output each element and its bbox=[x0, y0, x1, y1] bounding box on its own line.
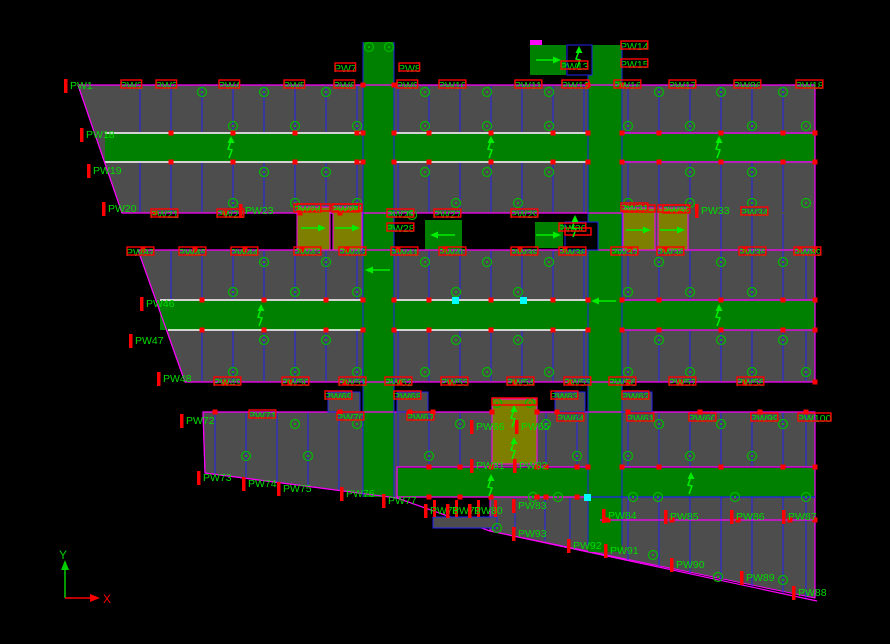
wall-label-tick bbox=[470, 420, 474, 434]
wall-end-mark bbox=[620, 465, 625, 470]
wall-label: PW55 bbox=[563, 377, 592, 389]
wall-label-tick bbox=[242, 477, 246, 491]
wall-label: PW86 bbox=[733, 80, 762, 92]
column-marker-dot bbox=[428, 455, 430, 457]
column-marker-dot bbox=[486, 91, 488, 93]
wall-end-mark bbox=[200, 328, 205, 333]
column-marker-dot bbox=[486, 371, 488, 373]
wall-end-mark bbox=[813, 298, 818, 303]
column-marker-dot bbox=[689, 171, 691, 173]
wall-label: PW18 bbox=[795, 80, 824, 92]
wall-label: PW21 bbox=[150, 209, 179, 221]
wall-end-mark bbox=[293, 131, 298, 136]
column-marker-dot bbox=[356, 371, 358, 373]
wall-label-tick bbox=[87, 164, 91, 178]
wall-end-mark bbox=[213, 410, 218, 415]
wall-label: PW39 bbox=[510, 247, 539, 259]
wall-label: PW75 bbox=[283, 483, 312, 495]
wall-label: PW41 bbox=[390, 247, 419, 259]
column-marker-dot bbox=[576, 455, 578, 457]
column-marker-dot bbox=[517, 291, 519, 293]
column-marker-dot bbox=[751, 371, 753, 373]
wall-end-mark bbox=[392, 298, 397, 303]
wall-end-mark bbox=[489, 160, 494, 165]
wall-end-mark bbox=[392, 160, 397, 165]
wall-end-mark bbox=[719, 465, 724, 470]
wall-label: PW89 bbox=[793, 247, 822, 259]
wall-label: PW57 bbox=[668, 377, 697, 389]
wall-end-mark bbox=[262, 328, 267, 333]
wall-end-mark bbox=[575, 465, 580, 470]
column-marker-dot bbox=[532, 496, 534, 498]
wall-end-mark bbox=[657, 131, 662, 136]
wall-label-tick bbox=[468, 504, 472, 518]
wall-label: PW45 bbox=[178, 247, 207, 259]
wall-label: PW99 bbox=[750, 413, 779, 425]
column-marker-dot bbox=[658, 261, 660, 263]
wall-end-mark bbox=[231, 131, 236, 136]
wall-label: PW66 bbox=[476, 421, 505, 433]
wall-label: PW29 bbox=[510, 209, 539, 221]
wall-label: PW33 bbox=[701, 205, 730, 217]
column-marker-dot bbox=[294, 291, 296, 293]
column-marker-dot bbox=[782, 91, 784, 93]
column-marker-dot bbox=[232, 202, 234, 204]
wall-end-mark bbox=[586, 298, 591, 303]
grip-point bbox=[584, 494, 591, 501]
wall-label: PW9 bbox=[396, 80, 419, 92]
column-marker-dot bbox=[486, 125, 488, 127]
wall-label: PW16 bbox=[613, 80, 642, 92]
wall-end-mark bbox=[551, 131, 556, 136]
cad-viewport[interactable]: PW7PW8PW14PW15PW13PW1PW2PW3PW4PW5PW6PW9P… bbox=[0, 0, 890, 644]
column-marker-dot bbox=[263, 171, 265, 173]
column-marker-dot bbox=[657, 496, 659, 498]
column-marker-dot bbox=[232, 125, 234, 127]
wall-end-mark bbox=[427, 495, 432, 500]
wall-end-mark bbox=[813, 328, 818, 333]
column-marker-dot bbox=[717, 576, 719, 578]
wall-label-tick bbox=[792, 586, 796, 600]
wall-end-mark bbox=[361, 328, 366, 333]
column-marker-dot bbox=[245, 455, 247, 457]
wall-label: PW3 bbox=[155, 80, 178, 92]
wall-end-mark bbox=[427, 465, 432, 470]
wall-end-mark bbox=[489, 328, 494, 333]
wall-end-mark bbox=[719, 160, 724, 165]
wall-end-mark bbox=[427, 298, 432, 303]
column-marker-dot bbox=[496, 402, 498, 404]
wall-label-tick bbox=[567, 539, 571, 553]
column-marker-dot bbox=[356, 125, 358, 127]
wall-label-tick bbox=[382, 494, 386, 508]
wall-label-tick bbox=[730, 510, 734, 524]
wall-end-mark bbox=[719, 298, 724, 303]
column-marker-dot bbox=[424, 125, 426, 127]
wall-label: PW76 bbox=[346, 488, 375, 500]
wall-label: PW53 bbox=[440, 377, 469, 389]
wall-label-tick bbox=[140, 297, 144, 311]
column-marker-dot bbox=[424, 261, 426, 263]
wall-end-mark bbox=[586, 131, 591, 136]
wall-label-tick bbox=[602, 509, 606, 523]
column-marker-dot bbox=[325, 91, 327, 93]
column-marker-dot bbox=[805, 125, 807, 127]
wall-end-mark bbox=[719, 131, 724, 136]
column-marker-dot bbox=[782, 339, 784, 341]
wall-label: PW58 bbox=[736, 377, 765, 389]
wall-end-mark bbox=[657, 160, 662, 165]
column-marker-dot bbox=[548, 261, 550, 263]
wall-label: PW90 bbox=[676, 559, 705, 571]
wall-label: PW19 bbox=[93, 165, 122, 177]
wall-end-mark bbox=[620, 328, 625, 333]
column-marker-dot bbox=[720, 261, 722, 263]
wall-end-mark bbox=[458, 495, 463, 500]
wall-label: PW54 bbox=[506, 377, 535, 389]
wall-label-tick bbox=[515, 420, 519, 434]
column-marker-dot bbox=[720, 339, 722, 341]
wall-label: PW68 bbox=[393, 391, 422, 403]
wall-label: PW5 bbox=[283, 80, 306, 92]
wall-end-mark bbox=[427, 131, 432, 136]
wall-label: PW63 bbox=[550, 391, 579, 403]
column-marker-dot bbox=[782, 579, 784, 581]
column-marker-dot bbox=[689, 455, 691, 457]
wall-end-mark bbox=[458, 465, 463, 470]
wall-label-tick bbox=[157, 372, 161, 386]
wall-end-mark bbox=[657, 328, 662, 333]
wall-label-tick bbox=[740, 571, 744, 585]
wall-end-mark bbox=[657, 298, 662, 303]
wall-end-mark bbox=[620, 131, 625, 136]
wall-label-tick bbox=[695, 204, 699, 218]
column-marker-dot bbox=[751, 125, 753, 127]
column-marker-dot bbox=[201, 91, 203, 93]
wall-label: PW81 bbox=[476, 460, 505, 472]
wall-end-mark bbox=[427, 160, 432, 165]
wall-end-mark bbox=[489, 298, 494, 303]
column-marker-dot bbox=[627, 371, 629, 373]
wall-label: PW23 bbox=[245, 205, 274, 217]
column-marker-dot bbox=[782, 423, 784, 425]
column-marker-dot bbox=[782, 261, 784, 263]
wall-end-mark bbox=[535, 410, 540, 415]
column-marker-dot bbox=[368, 46, 370, 48]
wall-label-tick bbox=[782, 510, 786, 524]
wall-label: PW30 bbox=[558, 223, 587, 235]
column-marker-dot bbox=[805, 202, 807, 204]
wall-end-mark bbox=[551, 328, 556, 333]
wall-label-tick bbox=[102, 202, 106, 216]
wall-end-mark bbox=[657, 465, 662, 470]
column-marker-dot bbox=[307, 455, 309, 457]
wall-label: PW20 bbox=[108, 203, 137, 215]
column-marker-dot bbox=[455, 339, 457, 341]
wall-end-mark bbox=[231, 160, 236, 165]
wall-tick bbox=[530, 40, 542, 45]
wall-end-mark bbox=[586, 160, 591, 165]
column-marker-dot bbox=[751, 291, 753, 293]
column-marker-dot bbox=[627, 291, 629, 293]
wall-end-mark bbox=[392, 328, 397, 333]
wall-label: PW7 bbox=[334, 63, 357, 75]
wall-label-tick bbox=[424, 504, 428, 518]
wall-label: PW80 bbox=[474, 505, 503, 517]
wall-end-mark bbox=[361, 160, 366, 165]
column-marker-dot bbox=[294, 371, 296, 373]
wall-label: PW4 bbox=[218, 80, 241, 92]
column-marker-dot bbox=[632, 496, 634, 498]
wall-label-tick bbox=[604, 544, 608, 558]
wall-label: PW15 bbox=[620, 59, 649, 71]
wall-label: PW27 bbox=[433, 209, 462, 221]
wall-label-tick bbox=[470, 459, 474, 473]
wall-end-mark bbox=[781, 131, 786, 136]
wall-end-mark bbox=[324, 328, 329, 333]
column-marker-dot bbox=[627, 125, 629, 127]
column-marker-dot bbox=[548, 91, 550, 93]
wall-label: PW6 bbox=[333, 80, 356, 92]
wall-end-mark bbox=[169, 160, 174, 165]
wall-end-mark bbox=[361, 83, 366, 88]
wall-label: PW83 bbox=[518, 500, 547, 512]
column-marker-dot bbox=[424, 171, 426, 173]
column-marker-dot bbox=[734, 496, 736, 498]
wall-end-mark bbox=[620, 298, 625, 303]
column-marker-dot bbox=[805, 496, 807, 498]
wall-end-mark bbox=[586, 328, 591, 333]
wall-label: PW47 bbox=[135, 335, 164, 347]
wall-label: PW1 bbox=[70, 80, 93, 92]
wall-label: PW88 bbox=[798, 587, 827, 599]
column-marker-dot bbox=[294, 125, 296, 127]
wall-label-tick bbox=[129, 334, 133, 348]
wall-end-mark bbox=[200, 298, 205, 303]
wall-label: PW48 bbox=[163, 373, 192, 385]
wall-label-tick bbox=[197, 471, 201, 485]
column-marker-dot bbox=[455, 202, 457, 204]
wall-label-tick bbox=[512, 527, 516, 541]
floor-plan[interactable]: PW7PW8PW14PW15PW13PW1PW2PW3PW4PW5PW6PW9P… bbox=[0, 0, 890, 644]
column-marker-dot bbox=[325, 171, 327, 173]
column-marker-dot bbox=[720, 91, 722, 93]
drive-aisle bbox=[397, 468, 815, 497]
wall-label-tick bbox=[239, 204, 243, 218]
wall-label: PW24 bbox=[293, 204, 322, 216]
wall-end-mark bbox=[544, 495, 549, 500]
wall-label: PW71 bbox=[248, 410, 277, 422]
wall-end-mark bbox=[551, 298, 556, 303]
drive-aisle bbox=[105, 134, 815, 161]
column-marker-dot bbox=[805, 371, 807, 373]
wall-label: PW13 bbox=[560, 61, 589, 73]
wall-label: PW86 bbox=[736, 511, 765, 523]
wall-label: PW40 bbox=[438, 247, 467, 259]
wall-label-tick bbox=[513, 459, 517, 473]
wall-end-mark bbox=[392, 131, 397, 136]
wall-end-mark bbox=[262, 298, 267, 303]
wall-label: PW36 bbox=[656, 247, 685, 259]
wall-label: PW72 bbox=[186, 415, 215, 427]
column-marker-dot bbox=[424, 371, 426, 373]
wall-label: PW74 bbox=[248, 478, 277, 490]
wall-label: PW44 bbox=[230, 247, 259, 259]
wall-label: PW61 bbox=[626, 413, 655, 425]
wall-label-tick bbox=[340, 487, 344, 501]
x-axis-label: X bbox=[103, 592, 111, 606]
wall-label-tick bbox=[664, 510, 668, 524]
wall-end-mark bbox=[813, 380, 818, 385]
wall-label-tick bbox=[670, 558, 674, 572]
wall-label: PW93 bbox=[518, 528, 547, 540]
wall-label: PW8 bbox=[398, 63, 421, 75]
wall-end-mark bbox=[620, 160, 625, 165]
column-marker-dot bbox=[388, 46, 390, 48]
column-marker-dot bbox=[263, 91, 265, 93]
column-marker-dot bbox=[325, 261, 327, 263]
wall-end-mark bbox=[293, 160, 298, 165]
wall-label: PW34 bbox=[740, 207, 769, 219]
column-marker-dot bbox=[658, 423, 660, 425]
column-marker-dot bbox=[263, 339, 265, 341]
wall-label: PW11 bbox=[514, 80, 542, 92]
wall-label: PW25 bbox=[331, 204, 360, 216]
column-marker-dot bbox=[751, 202, 753, 204]
y-axis-label: Y bbox=[59, 548, 67, 562]
wall-label: PW28 bbox=[386, 223, 415, 235]
wall-label: PW12 bbox=[561, 80, 590, 92]
wall-label: PW2 bbox=[120, 80, 143, 92]
wall-end-mark bbox=[355, 131, 360, 136]
column-marker-dot bbox=[356, 291, 358, 293]
wall-label: PW14 bbox=[620, 41, 649, 53]
wall-label: PW84 bbox=[608, 510, 637, 522]
column-marker-dot bbox=[486, 171, 488, 173]
wall-end-mark bbox=[813, 465, 818, 470]
column-marker-dot bbox=[325, 339, 327, 341]
wall-end-mark bbox=[535, 495, 540, 500]
wall-label: PW92 bbox=[573, 540, 602, 552]
column-marker-dot bbox=[486, 261, 488, 263]
wall-label: PW17 bbox=[668, 80, 697, 92]
wall-end-mark bbox=[355, 160, 360, 165]
wall-end-mark bbox=[719, 328, 724, 333]
wall-end-mark bbox=[169, 131, 174, 136]
wall-label: PW37 bbox=[610, 247, 639, 259]
wall-label: PW70 bbox=[336, 412, 365, 424]
wall-label: PW56 bbox=[608, 377, 637, 389]
wall-label: PW51 bbox=[338, 377, 367, 389]
column-marker-dot bbox=[459, 423, 461, 425]
wall-end-mark bbox=[551, 160, 556, 165]
column-marker-dot bbox=[294, 423, 296, 425]
column-marker-dot bbox=[658, 339, 660, 341]
wall-label-tick bbox=[446, 504, 450, 518]
wall-end-mark bbox=[361, 131, 366, 136]
wall-label: PW73 bbox=[203, 472, 232, 484]
column-marker-dot bbox=[751, 171, 753, 173]
grip-point bbox=[520, 297, 527, 304]
wall-label: PW31 bbox=[620, 203, 649, 215]
column-marker-dot bbox=[548, 171, 550, 173]
wall-label: PW60 bbox=[688, 413, 717, 425]
wall-label: PW10 bbox=[438, 80, 467, 92]
wall-end-mark bbox=[575, 495, 580, 500]
wall-label-tick bbox=[277, 482, 281, 496]
column-marker-dot bbox=[557, 496, 559, 498]
wall-label: PW89 bbox=[746, 572, 775, 584]
wall-label: PW43 bbox=[293, 247, 322, 259]
wall-end-mark bbox=[490, 410, 495, 415]
column-marker-dot bbox=[548, 125, 550, 127]
column-marker-dot bbox=[627, 455, 629, 457]
column-marker-dot bbox=[232, 371, 234, 373]
wall-label: PW35 bbox=[738, 247, 767, 259]
wall-label-tick bbox=[180, 414, 184, 428]
column-marker-dot bbox=[689, 371, 691, 373]
column-marker-dot bbox=[689, 202, 691, 204]
column-marker-dot bbox=[689, 291, 691, 293]
wall-label: PW50 bbox=[281, 377, 310, 389]
column-marker-dot bbox=[548, 371, 550, 373]
wall-label: PW32 bbox=[662, 205, 691, 217]
wall-end-mark bbox=[489, 131, 494, 136]
wall-label: PW82 bbox=[519, 460, 548, 472]
wall-label: PW38 bbox=[558, 247, 587, 259]
wall-end-mark bbox=[324, 298, 329, 303]
wall-label: PW62 bbox=[621, 391, 650, 403]
wall-end-mark bbox=[781, 298, 786, 303]
wall-label: PW52 bbox=[384, 377, 413, 389]
wall-label-tick bbox=[80, 128, 84, 142]
wall-label: PW77 bbox=[388, 495, 417, 507]
wall-end-mark bbox=[586, 465, 591, 470]
wall-label: PW67 bbox=[406, 412, 435, 424]
column-marker-dot bbox=[455, 291, 457, 293]
wall-end-mark bbox=[781, 465, 786, 470]
column-marker-dot bbox=[496, 527, 498, 529]
wall-label: PW49 bbox=[213, 377, 242, 389]
column-marker-dot bbox=[720, 423, 722, 425]
wall-label: PW65 bbox=[521, 421, 550, 433]
column-marker-dot bbox=[529, 402, 531, 404]
wall-label: PW85 bbox=[670, 511, 699, 523]
column-marker-dot bbox=[751, 455, 753, 457]
wall-end-mark bbox=[781, 160, 786, 165]
wall-label-tick bbox=[512, 499, 516, 513]
column-marker-dot bbox=[652, 554, 654, 556]
column-marker-dot bbox=[658, 91, 660, 93]
column-marker-dot bbox=[232, 291, 234, 293]
grip-point bbox=[452, 297, 459, 304]
wall-label: PW87 bbox=[126, 247, 155, 259]
wall-label-tick bbox=[64, 79, 68, 93]
column-marker-dot bbox=[424, 91, 426, 93]
column-marker-dot bbox=[517, 339, 519, 341]
wall-label: PW18 bbox=[86, 129, 115, 141]
wall-label: PW46 bbox=[146, 298, 175, 310]
wall-label: PW69 bbox=[324, 391, 353, 403]
wall-label: PW64 bbox=[556, 413, 585, 425]
wall-label: PW100 bbox=[797, 413, 832, 425]
wall-end-mark bbox=[813, 160, 818, 165]
column-marker-dot bbox=[689, 125, 691, 127]
column-marker-dot bbox=[263, 261, 265, 263]
wall-label: PW42 bbox=[338, 247, 367, 259]
wall-end-mark bbox=[781, 328, 786, 333]
wall-end-mark bbox=[427, 328, 432, 333]
